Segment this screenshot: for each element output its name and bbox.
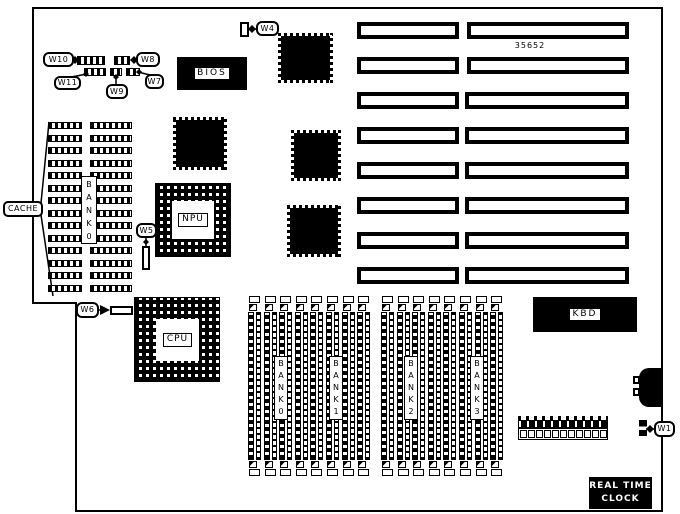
simm-slot [428,296,441,476]
simm-slot [248,296,261,476]
bank1-label: B A N K 1 [329,356,343,420]
jumper-w8-label: W8 [136,52,160,67]
simm-slot [295,296,308,476]
jumper-w11-label: W11 [54,76,81,90]
cache-socket-row [48,135,132,142]
bank3-label: B A N K 3 [470,356,484,420]
cache-socket-row [48,122,132,129]
jumper-w6-label: W6 [76,302,99,318]
simm-slot [342,296,355,476]
cache-socket-row [48,272,132,279]
simm-slot [490,296,503,476]
bank0-label: B A N K 0 [274,356,288,420]
cache-socket-row [48,285,132,292]
cache-bank0-label: B A N K 0 [81,176,97,244]
jumper-w5-label: W5 [136,223,157,238]
motherboard-diagram: W10 W8 W11 W9 W7 W4 BIOS CACHE B A N K 0… [0,0,680,514]
simm-slot [310,296,323,476]
jumper-w4-label: W4 [256,21,279,36]
simm-slot [443,296,456,476]
jumper-w7-label: W7 [145,74,164,89]
simm-slot [381,296,394,476]
jumper-w1-label: W1 [654,421,675,437]
cache-socket-row [48,260,132,267]
cache-socket-row [48,147,132,154]
cache-label: CACHE [3,201,43,217]
cache-socket-row [48,247,132,254]
jumper-w10-label: W10 [43,52,74,67]
simm-slot [357,296,370,476]
cache-socket-row [48,160,132,167]
jumper-w9-label: W9 [106,84,128,99]
bank2-label: B A N K 2 [404,356,418,420]
